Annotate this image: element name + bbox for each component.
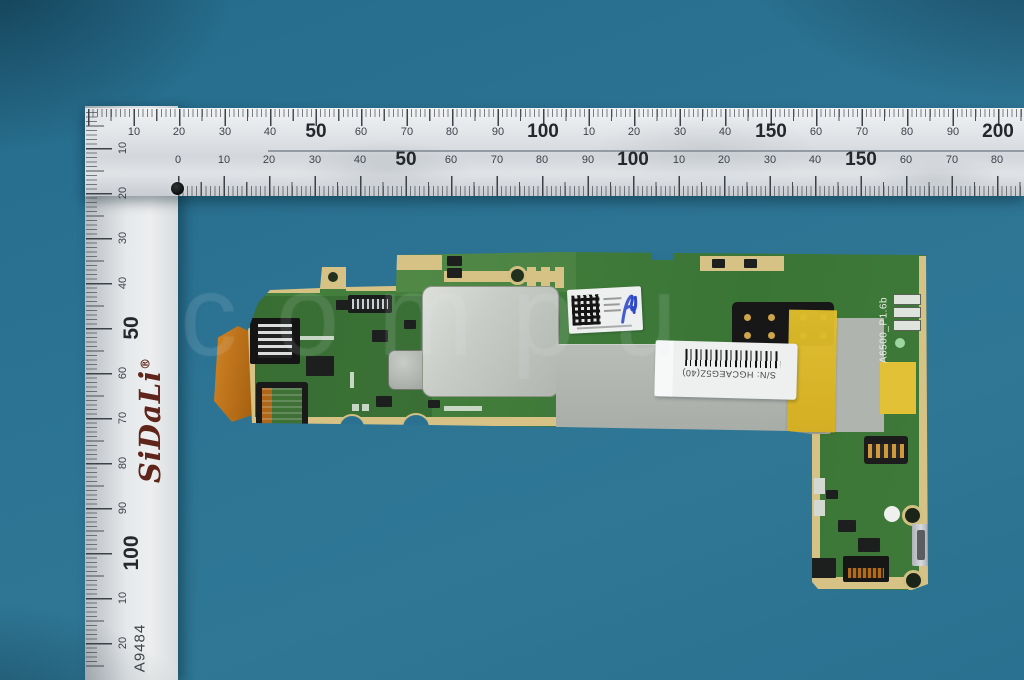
ruler-number: 70 xyxy=(491,154,503,166)
ruler-number: 10 xyxy=(673,154,685,166)
ruler-number: 20 xyxy=(718,154,730,166)
ruler-top-scale-numbers: 1020304050607080901001020304015060708090… xyxy=(0,126,1024,146)
screw-hole xyxy=(903,570,924,591)
ruler-number: 20 xyxy=(173,126,185,138)
connector-pin xyxy=(744,314,751,321)
ruler-number: 40 xyxy=(354,154,366,166)
smd-component xyxy=(826,490,838,499)
ruler-number: 20 xyxy=(628,126,640,138)
ruler-hang-hole xyxy=(171,182,184,195)
mounting-hole xyxy=(508,266,527,285)
solder-pad xyxy=(814,478,825,494)
smd-component xyxy=(404,320,416,329)
ruler-number: 90 xyxy=(947,126,959,138)
solder-pad xyxy=(814,500,825,516)
ruler-number: 80 xyxy=(446,126,458,138)
ruler-number: 60 xyxy=(900,154,912,166)
solder-pad xyxy=(893,320,921,331)
connector-pin xyxy=(768,332,775,339)
serial-number-text: S/N: HGCAEG5Z(40) xyxy=(673,368,785,381)
flex-cable xyxy=(214,326,254,422)
connector-pins xyxy=(848,568,884,578)
gold-pad xyxy=(541,267,550,288)
qr-label xyxy=(567,286,643,334)
ruler-number: 40 xyxy=(264,126,276,138)
ruler-number: 50 xyxy=(120,316,144,339)
board-notch xyxy=(338,414,366,442)
ruler-number: 20 xyxy=(263,154,275,166)
ruler-number: 40 xyxy=(719,126,731,138)
usb-slot xyxy=(917,530,925,560)
flex-connector-gold xyxy=(864,436,908,464)
ruler-number: 70 xyxy=(117,412,129,424)
test-pad xyxy=(895,338,905,348)
ruler-number: 30 xyxy=(117,232,129,244)
ruler-number: 60 xyxy=(355,126,367,138)
ruler-number: 50 xyxy=(305,121,326,143)
smd-component xyxy=(712,259,725,268)
ruler-number: 10 xyxy=(218,154,230,166)
ruler-number: 100 xyxy=(120,535,144,570)
ruler-number: 0 xyxy=(175,154,181,166)
ruler-brand-text: SiDaLi® xyxy=(133,357,167,483)
connector-pins xyxy=(262,388,302,468)
ic-chip xyxy=(838,520,856,532)
ruler-number: 10 xyxy=(117,142,129,154)
test-pad xyxy=(352,404,359,411)
rf-shield-right xyxy=(830,318,884,432)
rf-shield-large xyxy=(422,286,559,397)
ruler-number: 40 xyxy=(809,154,821,166)
ruler-number: 40 xyxy=(117,277,129,289)
ic-chip xyxy=(810,558,836,578)
solder-pad xyxy=(893,307,921,318)
ruler-number: 70 xyxy=(946,154,958,166)
ruler-number: 80 xyxy=(901,126,913,138)
ruler-number: 30 xyxy=(764,154,776,166)
ruler-number: 30 xyxy=(674,126,686,138)
mounting-hole xyxy=(328,272,338,282)
flex-connector xyxy=(250,318,300,364)
ruler-number: 70 xyxy=(401,126,413,138)
sticker-fold xyxy=(654,340,673,396)
connector-pins xyxy=(352,299,388,309)
smd-component xyxy=(372,330,388,342)
smd-component xyxy=(447,268,462,278)
ruler-number: 30 xyxy=(309,154,321,166)
board-notch xyxy=(652,252,674,260)
ruler-number: 90 xyxy=(582,154,594,166)
kapton-tape-patch xyxy=(880,362,916,414)
silkscreen-mark xyxy=(350,372,354,388)
ruler-number: 90 xyxy=(117,502,129,514)
ruler-number: 100 xyxy=(527,121,559,143)
ruler-number: 50 xyxy=(395,149,416,171)
smd-component xyxy=(376,396,392,407)
silkscreen-mark xyxy=(444,406,482,411)
blue-stamp-icon xyxy=(617,288,641,327)
ruler-number: 30 xyxy=(219,126,231,138)
white-pad-circle xyxy=(884,506,900,522)
ic-chip xyxy=(306,356,334,376)
barcode-icon xyxy=(685,349,780,368)
test-pad xyxy=(362,404,369,411)
smd-component xyxy=(428,400,440,408)
ruler-number: 20 xyxy=(117,187,129,199)
smd-component xyxy=(744,259,757,268)
ruler-number: 60 xyxy=(117,367,129,379)
silkscreen-board-code: A6500_P1.6b xyxy=(879,297,890,363)
ruler-number: 60 xyxy=(445,154,457,166)
ic-chip xyxy=(858,538,880,552)
fpc-connector-long xyxy=(256,382,308,474)
smd-component xyxy=(447,256,462,266)
ruler-number: 10 xyxy=(583,126,595,138)
ruler-bottom-scale-ticks xyxy=(88,176,1024,196)
ruler-vertical-scale-ticks xyxy=(86,112,112,678)
ruler-number: 80 xyxy=(117,457,129,469)
board-connector xyxy=(348,295,392,313)
gold-pad xyxy=(555,267,564,288)
ruler-number: 90 xyxy=(492,126,504,138)
registered-trademark-icon: ® xyxy=(138,357,152,370)
serial-sticker: S/N: HGCAEG5Z(40) xyxy=(654,340,797,400)
connector-pins xyxy=(868,444,904,458)
ruler-number: 20 xyxy=(117,637,129,649)
edge-plating xyxy=(262,287,320,293)
ruler-bottom-scale-numbers: 010203040506070809010010203040150607080 xyxy=(0,154,1024,174)
ruler-number: 80 xyxy=(991,154,1003,166)
ruler-number: 150 xyxy=(755,121,787,143)
ruler-number: 10 xyxy=(128,126,140,138)
edge-plating xyxy=(346,285,396,291)
connector-pin xyxy=(744,332,751,339)
ruler-number: 200 xyxy=(982,121,1014,143)
screw-hole xyxy=(902,505,923,526)
ruler-model-code: A9484 xyxy=(132,624,149,672)
fpc-connector-bottom xyxy=(843,556,889,582)
qr-code-icon xyxy=(571,294,601,325)
smd-component xyxy=(336,300,350,310)
gold-pad xyxy=(527,267,536,288)
ruler-number: 80 xyxy=(536,154,548,166)
photo-scene: 1020304050607080901001020304015060708090… xyxy=(0,0,1024,680)
ruler-number: 10 xyxy=(117,592,129,604)
ruler-number: 100 xyxy=(617,149,649,171)
connector-pins xyxy=(258,324,292,358)
solder-pad xyxy=(893,294,921,305)
micro-usb-port xyxy=(912,524,930,566)
silkscreen-mark xyxy=(300,336,334,340)
ruler-number: 150 xyxy=(845,149,877,171)
ruler-number: 70 xyxy=(856,126,868,138)
ruler-number: 60 xyxy=(810,126,822,138)
board-notch xyxy=(401,413,431,443)
connector-pin xyxy=(768,314,775,321)
gold-pad xyxy=(396,255,442,270)
